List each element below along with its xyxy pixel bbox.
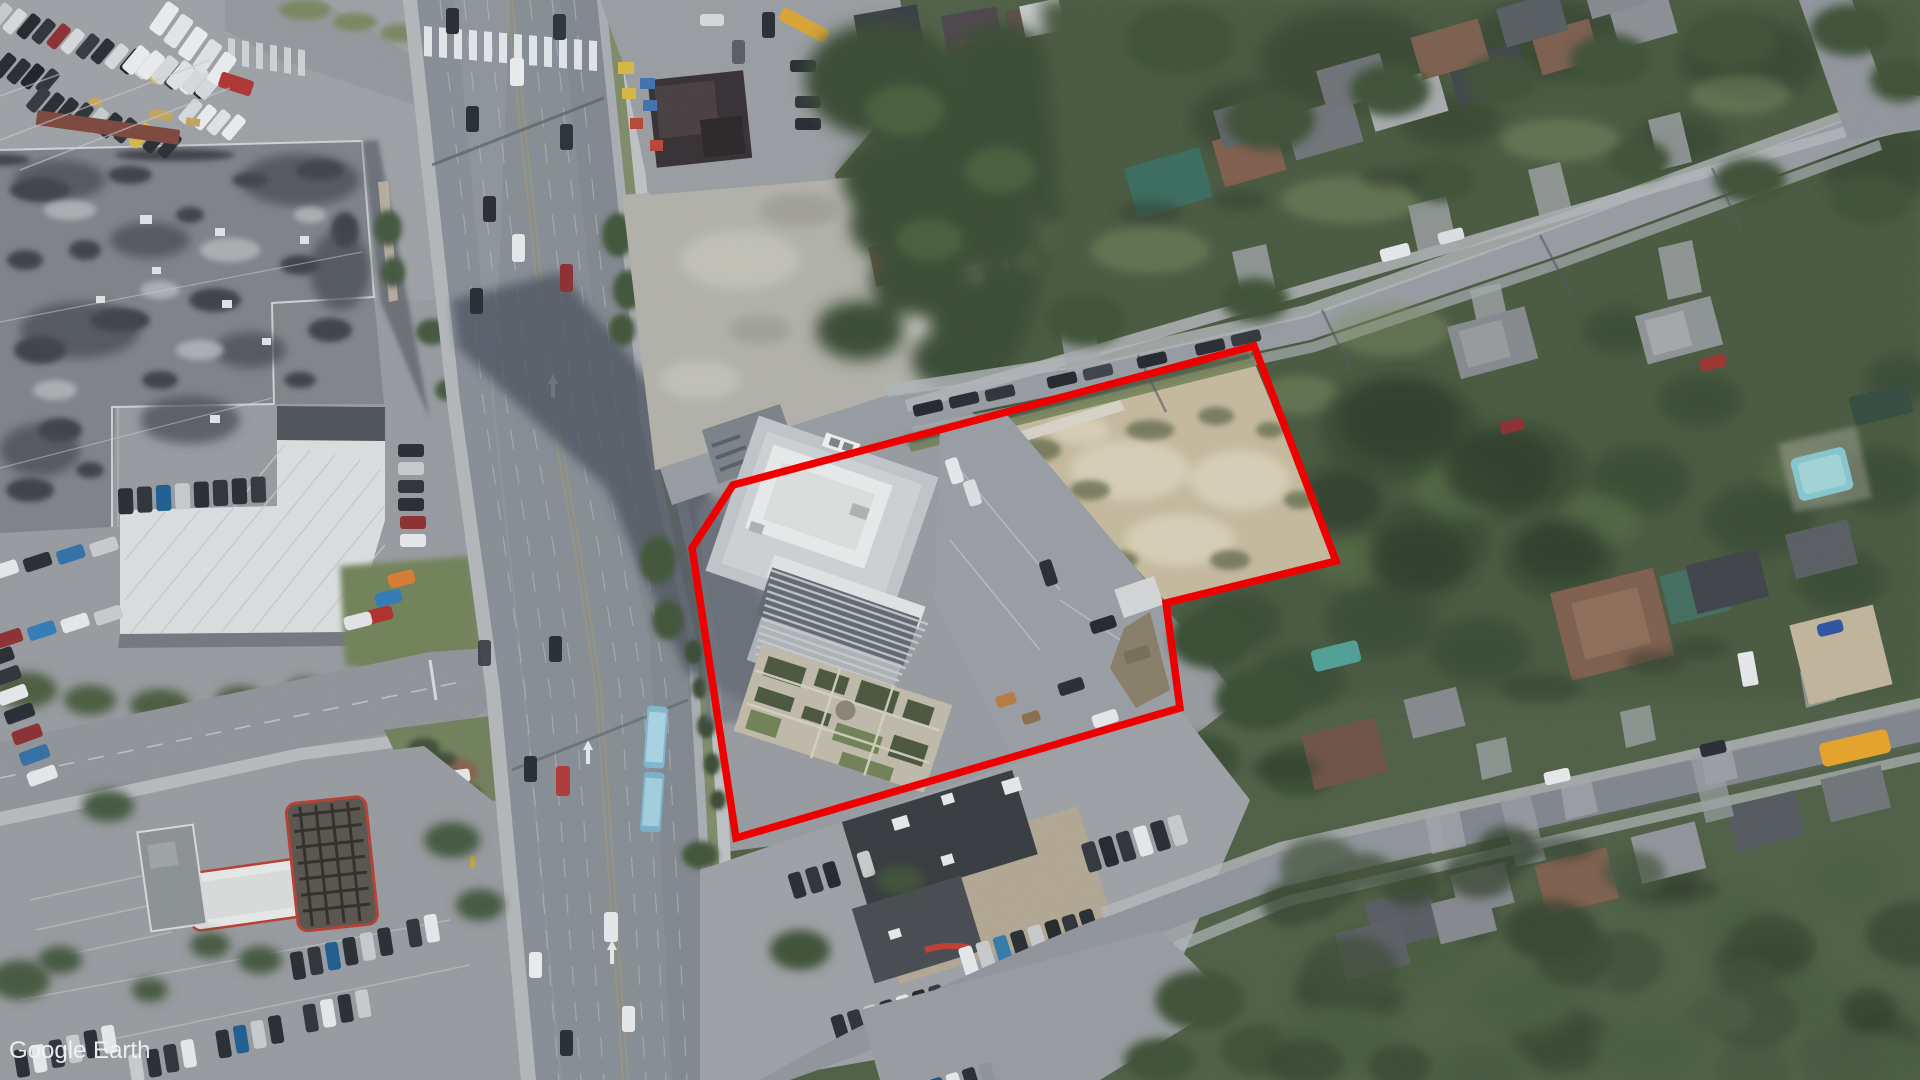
svg-text:Google Earth: Google Earth: [9, 1037, 150, 1064]
